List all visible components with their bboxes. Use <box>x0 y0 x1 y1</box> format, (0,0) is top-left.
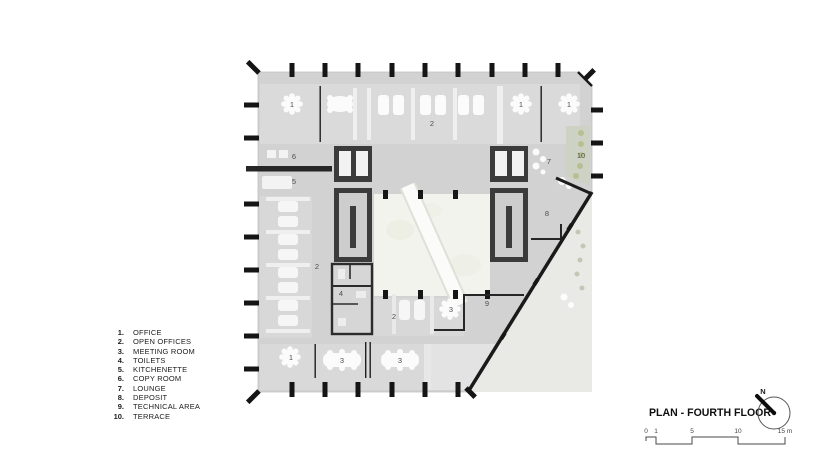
legend-item-number: 2. <box>106 337 124 346</box>
legend-item-label: TECHNICAL AREA <box>133 402 200 411</box>
room-label-meeting-b1: 3 <box>340 356 344 365</box>
north-needle-hub <box>772 411 776 415</box>
legend-item-number: 4. <box>106 356 124 365</box>
legend-item-number: 6. <box>106 374 124 383</box>
room-label-open-office-mid: 2 <box>392 312 396 321</box>
legend-item-number: 5. <box>106 365 124 374</box>
room-label-copy-room: 6 <box>292 152 296 161</box>
legend-item: 8.DEPOSIT <box>106 393 200 402</box>
room-label-lounge: 7 <box>547 157 551 166</box>
legend-item-label: LOUNGE <box>133 384 166 393</box>
legend-item-label: KITCHENETTE <box>133 365 187 374</box>
legend-item-number: 1. <box>106 328 124 337</box>
legend-item: 3.MEETING ROOM <box>106 347 200 356</box>
legend-item: 6.COPY ROOM <box>106 374 200 383</box>
toilets <box>332 264 372 334</box>
room-label-open-office-left: 2 <box>315 262 319 271</box>
scale-tick-1: 1 <box>654 428 658 435</box>
room-label-office-tr2: 1 <box>567 100 571 109</box>
legend-item-label: DEPOSIT <box>133 393 167 402</box>
room-label-kitchenette: 5 <box>292 177 296 186</box>
room-label-open-office-top: 2 <box>430 119 434 128</box>
legend-item-number: 8. <box>106 393 124 402</box>
left-core <box>334 146 372 262</box>
scale-tick-5: 5 <box>690 428 694 435</box>
legend-item-number: 3. <box>106 347 124 356</box>
room-label-office-tr1: 1 <box>519 100 523 109</box>
room-label-office-tl: 1 <box>290 100 294 109</box>
legend-item: 1.OFFICE <box>106 328 200 337</box>
scale-tick-10: 10 <box>734 428 742 435</box>
legend-item: 5.KITCHENETTE <box>106 365 200 374</box>
legend-item-label: MEETING ROOM <box>133 347 195 356</box>
legend: 1.OFFICE 2.OPEN OFFICES 3.MEETING ROOM 4… <box>106 328 200 421</box>
atrium <box>374 182 490 308</box>
room-label-office-bl: 1 <box>289 353 293 362</box>
legend-item: 9.TECHNICAL AREA <box>106 402 200 411</box>
room-label-meeting-mid: 3 <box>449 305 453 314</box>
scale-tick-0: 0 <box>644 428 648 435</box>
legend-item: 4.TOILETS <box>106 356 200 365</box>
legend-item: 2.OPEN OFFICES <box>106 337 200 346</box>
room-label-deposit: 8 <box>545 209 549 218</box>
legend-item-label: COPY ROOM <box>133 374 181 383</box>
legend-item-number: 7. <box>106 384 124 393</box>
legend-item-label: TERRACE <box>133 412 170 421</box>
page: 1 2 1 1 6 7 10 5 8 2 4 2 3 9 1 3 3 1.OFF… <box>0 0 822 462</box>
legend-item: 7.LOUNGE <box>106 384 200 393</box>
legend-item: 10.TERRACE <box>106 412 200 421</box>
room-label-toilets: 4 <box>339 289 343 298</box>
room-label-technical-area: 9 <box>485 299 489 308</box>
room-label-meeting-b2: 3 <box>398 356 402 365</box>
room-label-terrace: 10 <box>577 151 585 160</box>
legend-item-number: 10. <box>106 412 124 421</box>
north-needle <box>757 396 774 413</box>
floor-plan: 1 2 1 1 6 7 10 5 8 2 4 2 3 9 1 3 3 <box>235 55 605 405</box>
legend-item-number: 9. <box>106 402 124 411</box>
legend-item-label: TOILETS <box>133 356 166 365</box>
north-label: N <box>760 387 765 396</box>
legend-item-label: OFFICE <box>133 328 162 337</box>
right-core <box>490 146 528 262</box>
legend-item-label: OPEN OFFICES <box>133 337 191 346</box>
north-arrow: N <box>742 383 802 443</box>
